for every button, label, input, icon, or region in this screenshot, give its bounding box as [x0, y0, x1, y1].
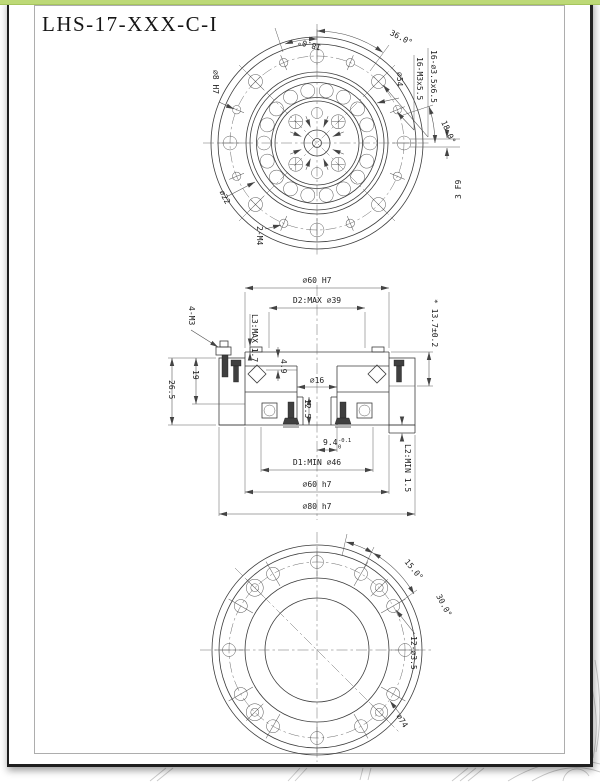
- accent-strip: [0, 0, 600, 5]
- page-title: LHS-17-XXX-C-I: [42, 12, 218, 37]
- drawing-frame-border: [34, 5, 565, 754]
